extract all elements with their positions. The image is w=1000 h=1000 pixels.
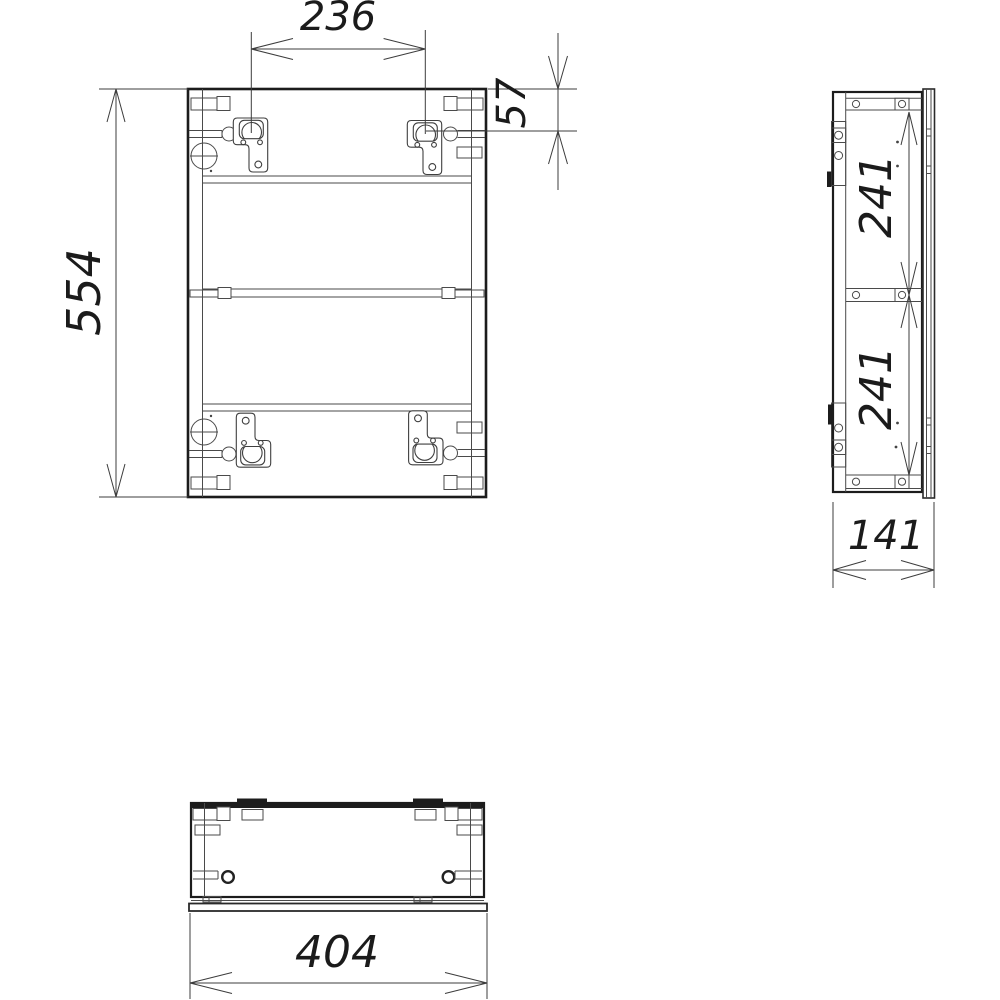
front-view <box>188 89 486 497</box>
hanging-bracket-bottom-left <box>236 413 270 467</box>
dimension-label-241-lower: 241 <box>855 346 899 430</box>
dimension-label-241-upper: 241 <box>855 154 899 238</box>
dimension-label-404: 404 <box>295 931 379 975</box>
dimension-lines <box>99 30 934 999</box>
bottom-view-outline <box>191 803 484 897</box>
cabinet-drawing-svg <box>0 0 1000 1000</box>
dimension-label-141: 141 <box>848 516 924 556</box>
door-panel-front <box>189 904 487 912</box>
hanging-bracket-top-right <box>407 121 441 175</box>
mount-hole-right <box>443 871 455 883</box>
hanging-bracket-bottom-right <box>409 411 443 465</box>
dimension-label-236: 236 <box>300 0 376 37</box>
mount-hole-left <box>222 871 234 883</box>
side-view <box>827 89 935 498</box>
dimension-554-lines <box>99 89 188 497</box>
hanging-bracket-top-left <box>233 118 267 172</box>
dimension-236-lines <box>251 30 425 134</box>
dimension-label-554: 554 <box>61 248 107 336</box>
technical-drawing: 236 57 554 241 241 141 404 <box>0 0 1000 1000</box>
dimension-label-57: 57 <box>492 78 532 129</box>
door-panel-edge <box>923 89 935 498</box>
bottom-view <box>189 799 487 912</box>
